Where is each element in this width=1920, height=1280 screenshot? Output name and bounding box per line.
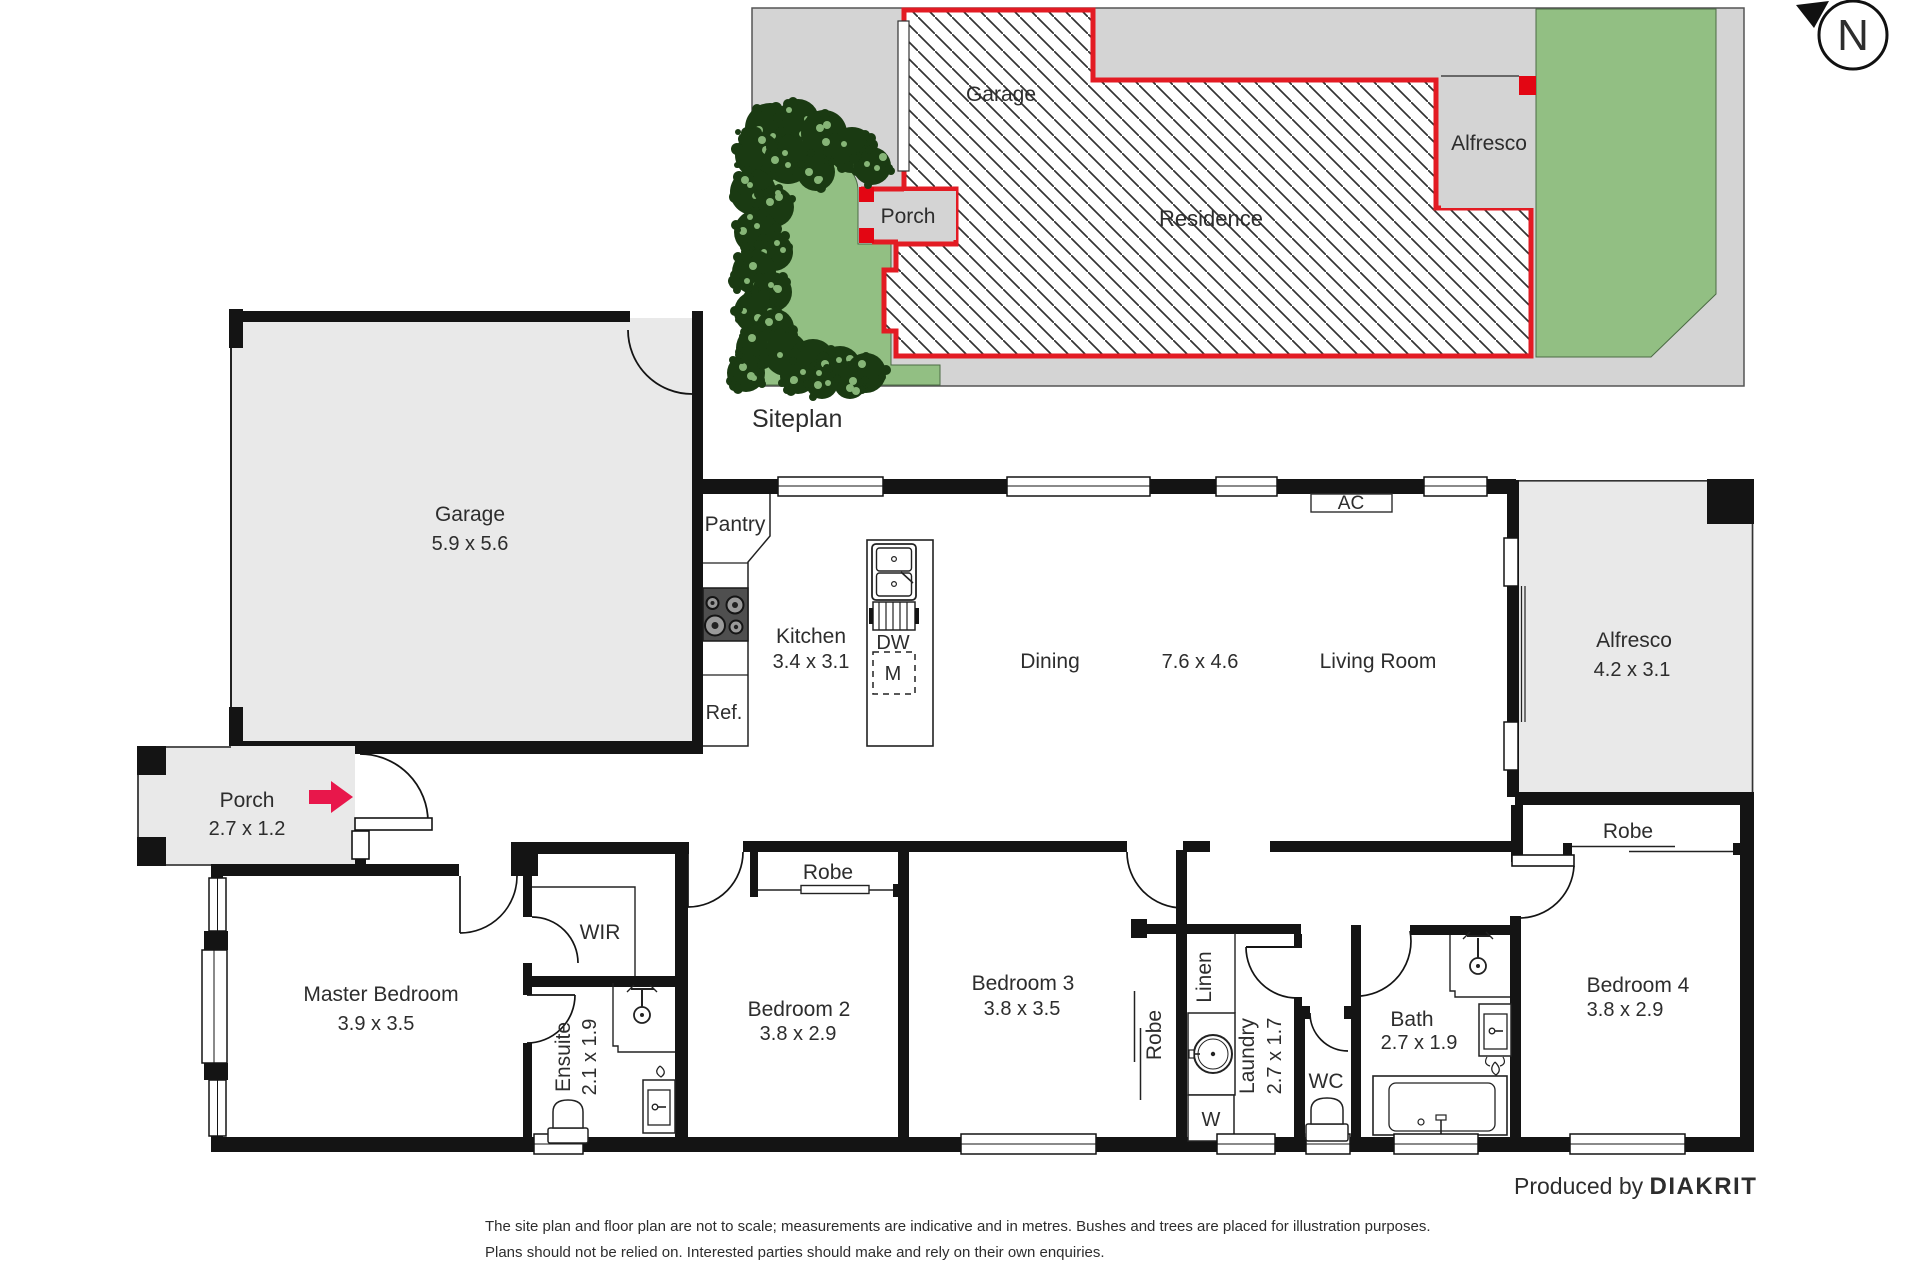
svg-text:Residence: Residence bbox=[1159, 206, 1263, 231]
svg-text:Master Bedroom: Master Bedroom bbox=[303, 983, 458, 1006]
svg-text:Produced by DIAKRIT: Produced by DIAKRIT bbox=[1514, 1173, 1757, 1200]
svg-text:5.9 x 5.6: 5.9 x 5.6 bbox=[432, 533, 509, 555]
svg-text:Garage: Garage bbox=[966, 83, 1036, 106]
svg-text:Kitchen: Kitchen bbox=[776, 625, 846, 648]
svg-text:Robe: Robe bbox=[803, 861, 853, 884]
svg-text:M: M bbox=[885, 663, 902, 685]
svg-text:3.8 x 2.9: 3.8 x 2.9 bbox=[1587, 999, 1664, 1021]
svg-text:Laundry: Laundry bbox=[1236, 1018, 1259, 1094]
svg-text:3.4 x 3.1: 3.4 x 3.1 bbox=[773, 651, 850, 673]
svg-text:Porch: Porch bbox=[220, 789, 275, 812]
svg-text:Bedroom 3: Bedroom 3 bbox=[972, 972, 1075, 995]
svg-text:7.6 x 4.6: 7.6 x 4.6 bbox=[1162, 651, 1239, 673]
svg-text:Robe: Robe bbox=[1603, 820, 1653, 843]
svg-text:Bath: Bath bbox=[1390, 1008, 1433, 1031]
svg-text:DW: DW bbox=[876, 632, 909, 654]
svg-text:2.7 x 1.2: 2.7 x 1.2 bbox=[209, 818, 286, 840]
svg-text:WIR: WIR bbox=[580, 921, 621, 944]
svg-text:WC: WC bbox=[1309, 1070, 1344, 1093]
svg-text:Bedroom 2: Bedroom 2 bbox=[748, 998, 851, 1021]
svg-text:N: N bbox=[1837, 11, 1869, 60]
svg-text:Living Room: Living Room bbox=[1320, 650, 1437, 673]
svg-text:Siteplan: Siteplan bbox=[752, 405, 842, 433]
svg-text:Robe: Robe bbox=[1143, 1010, 1166, 1060]
svg-text:Dining: Dining bbox=[1020, 650, 1080, 673]
svg-text:W: W bbox=[1202, 1109, 1221, 1131]
svg-text:Alfresco: Alfresco bbox=[1451, 132, 1527, 155]
svg-text:2.7 x 1.9: 2.7 x 1.9 bbox=[1381, 1032, 1458, 1054]
svg-text:The site plan and floor plan a: The site plan and floor plan are not to … bbox=[485, 1218, 1431, 1235]
svg-text:Linen: Linen bbox=[1193, 951, 1216, 1002]
svg-text:Porch: Porch bbox=[881, 205, 936, 228]
svg-text:Plans should not be relied on.: Plans should not be relied on. Intereste… bbox=[485, 1244, 1105, 1261]
svg-text:Ensuite: Ensuite bbox=[552, 1022, 575, 1092]
svg-text:Alfresco: Alfresco bbox=[1596, 629, 1672, 652]
svg-text:Ref.: Ref. bbox=[706, 702, 743, 724]
svg-text:Garage: Garage bbox=[435, 503, 505, 526]
svg-text:2.7 x 1.7: 2.7 x 1.7 bbox=[1264, 1018, 1286, 1095]
svg-text:3.8 x 2.9: 3.8 x 2.9 bbox=[760, 1023, 837, 1045]
svg-text:3.8 x 3.5: 3.8 x 3.5 bbox=[984, 998, 1061, 1020]
svg-text:AC: AC bbox=[1338, 493, 1364, 514]
svg-text:Bedroom 4: Bedroom 4 bbox=[1587, 974, 1690, 997]
svg-text:3.9 x 3.5: 3.9 x 3.5 bbox=[338, 1013, 415, 1035]
svg-text:2.1 x 1.9: 2.1 x 1.9 bbox=[579, 1019, 601, 1096]
svg-text:4.2 x 3.1: 4.2 x 3.1 bbox=[1594, 659, 1671, 681]
svg-text:Pantry: Pantry bbox=[705, 513, 766, 536]
